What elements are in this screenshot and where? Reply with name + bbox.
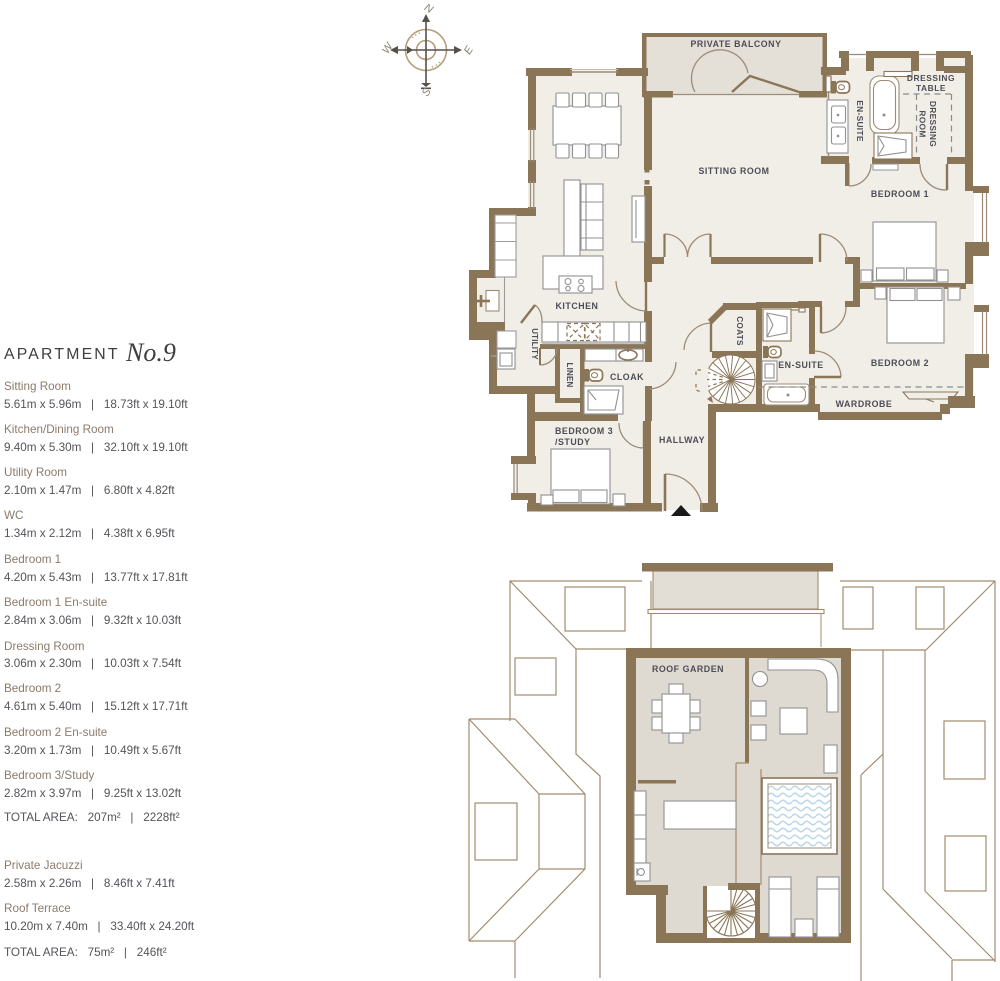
svg-text:Bedroom 2 En-suite: Bedroom 2 En-suite — [4, 726, 107, 739]
svg-text:Roof Terrace: Roof Terrace — [4, 902, 71, 915]
svg-text:EN-SUITE: EN-SUITE — [778, 360, 823, 370]
svg-text:2.58m x 2.26m | 8.46ft x 7: 2.58m x 2.26m | 8.46ft x 7.41ft — [4, 877, 175, 890]
svg-text:KITCHEN: KITCHEN — [556, 301, 599, 311]
svg-text:10.20m x 7.40m | 33.40ft x: 10.20m x 7.40m | 33.40ft x 24.20ft — [4, 920, 195, 933]
svg-text:4.20m x 5.43m | 13.77ft x: 4.20m x 5.43m | 13.77ft x 17.81ft — [4, 571, 188, 584]
svg-text:Kitchen/Dining Room: Kitchen/Dining Room — [4, 423, 114, 436]
svg-text:Utility Room: Utility Room — [4, 466, 67, 479]
svg-text:3.20m x 1.73m | 10.49ft x: 3.20m x 1.73m | 10.49ft x 5.67ft — [4, 744, 182, 757]
svg-text:BEDROOM 2: BEDROOM 2 — [871, 358, 929, 368]
svg-text:2.10m x 1.47m | 6.80ft x 4: 2.10m x 1.47m | 6.80ft x 4.82ft — [4, 484, 175, 497]
svg-text:Bedroom 1: Bedroom 1 — [4, 553, 61, 566]
svg-text:TOTAL AREA: 75m² | 246ft: TOTAL AREA: 75m² | 246ft² — [4, 946, 167, 959]
svg-text:HALLWAY: HALLWAY — [659, 435, 705, 445]
svg-text:SITTING ROOM: SITTING ROOM — [698, 166, 769, 176]
svg-text:PRIVATE BALCONY: PRIVATE BALCONY — [690, 39, 781, 49]
svg-text:DRESSING: DRESSING — [907, 73, 955, 83]
svg-text:9.40m x 5.30m | 32.10ft x: 9.40m x 5.30m | 32.10ft x 19.10ft — [4, 441, 188, 454]
svg-text:BEDROOM 3: BEDROOM 3 — [555, 426, 613, 436]
svg-text:WARDROBE: WARDROBE — [836, 399, 893, 409]
svg-text:EN-SUITE: EN-SUITE — [855, 100, 865, 142]
svg-text:Private Jacuzzi: Private Jacuzzi — [4, 859, 83, 872]
svg-text:Dressing Room: Dressing Room — [4, 640, 85, 653]
svg-text:LINEN: LINEN — [565, 363, 574, 388]
svg-text:TABLE: TABLE — [916, 83, 946, 93]
svg-text:Sitting Room: Sitting Room — [4, 380, 71, 393]
svg-text:UTILITY: UTILITY — [530, 328, 539, 360]
svg-text:Bedroom 2: Bedroom 2 — [4, 682, 61, 695]
svg-text:TOTAL AREA: 207m² | 2228: TOTAL AREA: 207m² | 2228ft² — [4, 811, 180, 824]
svg-text:2.82m x 3.97m | 9.25ft x 1: 2.82m x 3.97m | 9.25ft x 13.02ft — [4, 787, 182, 800]
svg-text:CLOAK: CLOAK — [610, 372, 644, 382]
svg-text:Bedroom 1 En-suite: Bedroom 1 En-suite — [4, 596, 107, 609]
svg-text:3.06m x 2.30m | 10.03ft x: 3.06m x 2.30m | 10.03ft x 7.54ft — [4, 657, 182, 670]
svg-text:ROOF GARDEN: ROOF GARDEN — [652, 664, 724, 674]
svg-text:APARTMENT: APARTMENT — [4, 346, 120, 363]
svg-text:BEDROOM 1: BEDROOM 1 — [871, 189, 929, 199]
svg-text:4.61m x 5.40m | 15.12ft x: 4.61m x 5.40m | 15.12ft x 17.71ft — [4, 700, 188, 713]
svg-text:2.84m x 3.06m | 9.32ft x 1: 2.84m x 3.06m | 9.32ft x 10.03ft — [4, 614, 182, 627]
svg-text:E: E — [462, 44, 476, 57]
svg-text:COATS: COATS — [735, 316, 744, 346]
svg-text:No.9: No.9 — [125, 338, 176, 367]
svg-text:W: W — [380, 40, 397, 57]
svg-text:5.61m x 5.96m | 18.73ft x: 5.61m x 5.96m | 18.73ft x 19.10ft — [4, 398, 188, 411]
svg-text:WC: WC — [4, 509, 23, 522]
svg-text:N: N — [422, 2, 435, 16]
svg-text:Bedroom 3/Study: Bedroom 3/Study — [4, 769, 94, 782]
svg-text:/STUDY: /STUDY — [555, 437, 591, 447]
svg-text:1.34m x 2.12m | 4.38ft x 6: 1.34m x 2.12m | 4.38ft x 6.95ft — [4, 527, 175, 540]
